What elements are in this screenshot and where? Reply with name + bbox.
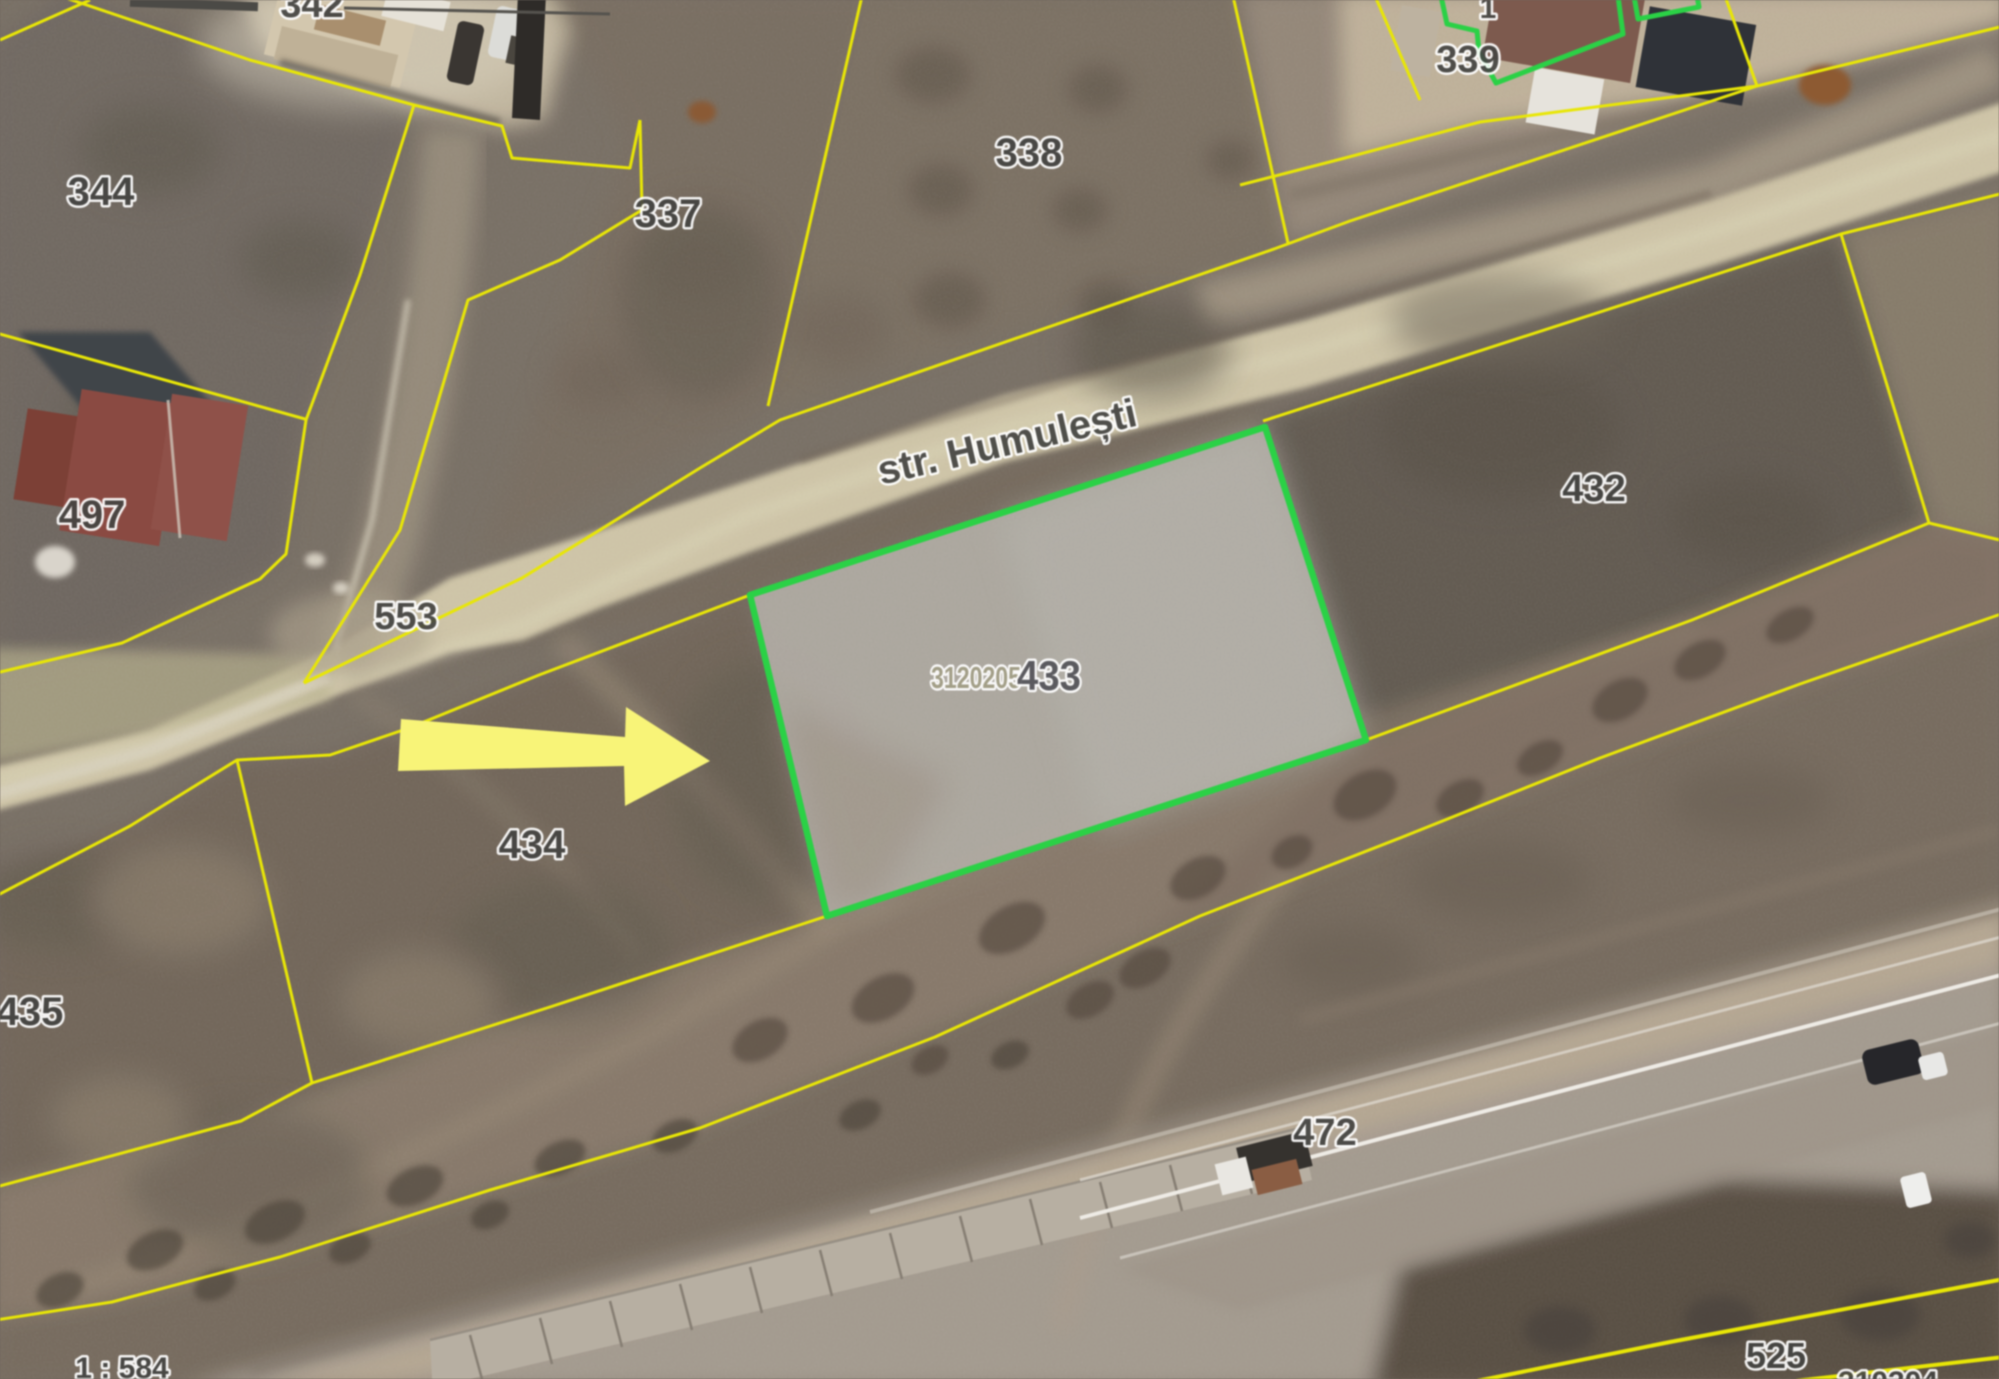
svg-text:525: 525 [1746, 1335, 1806, 1376]
svg-text:344: 344 [68, 170, 135, 214]
svg-text:3120205: 3120205 [931, 660, 1021, 695]
svg-text:1 : 584: 1 : 584 [75, 1352, 169, 1379]
svg-text:310304: 310304 [1838, 1366, 1938, 1379]
svg-text:342: 342 [280, 0, 343, 26]
svg-text:435: 435 [0, 990, 63, 1034]
svg-text:1: 1 [1480, 0, 1497, 25]
svg-text:497: 497 [59, 493, 126, 537]
svg-text:339: 339 [1436, 39, 1499, 81]
svg-text:434: 434 [499, 823, 566, 867]
svg-text:337: 337 [635, 192, 702, 236]
svg-text:338: 338 [996, 131, 1063, 175]
svg-text:433: 433 [1017, 652, 1081, 699]
svg-text:553: 553 [374, 596, 437, 638]
svg-text:432: 432 [1562, 468, 1625, 510]
svg-text:472: 472 [1293, 1112, 1356, 1154]
